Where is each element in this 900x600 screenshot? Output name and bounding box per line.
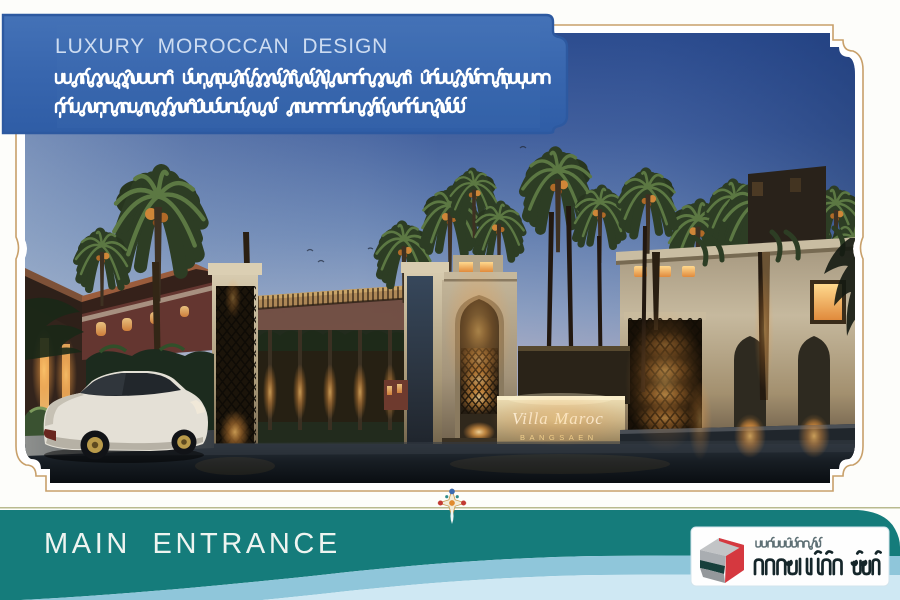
svg-text:LUXURY MOROCCAN DESIGN: LUXURY MOROCCAN DESIGN [55, 35, 388, 58]
svg-text:MAIN ENTRANCE: MAIN ENTRANCE [44, 528, 341, 560]
